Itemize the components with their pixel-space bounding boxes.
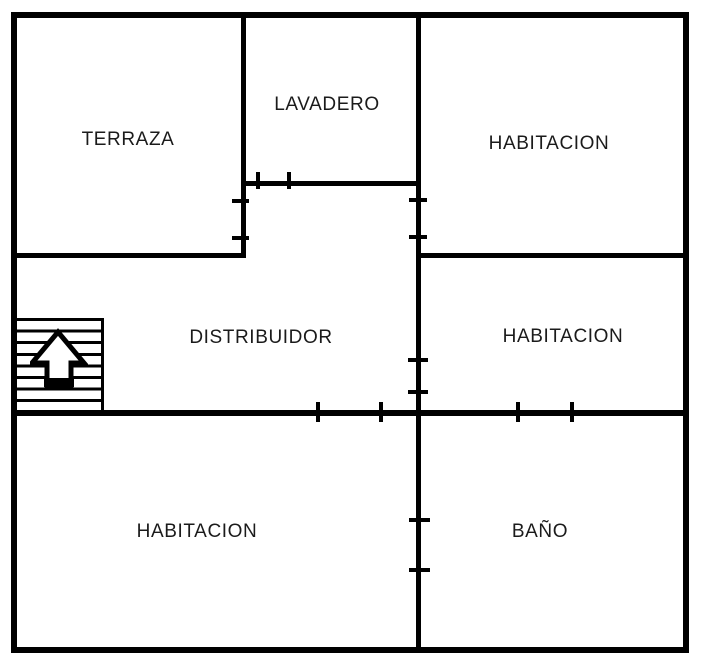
door-mark-habitacion-bottom-a (316, 402, 320, 422)
room-label-bano: BAÑO (512, 521, 568, 543)
room-label-lavadero: LAVADERO (274, 94, 379, 116)
room-label-habitacion-top-right: HABITACION (489, 133, 610, 155)
room-label-terraza: TERRAZA (82, 129, 175, 151)
door-mark-habitacion-bottom-b (379, 402, 383, 422)
wall-middle-horizontal (11, 410, 689, 416)
wall-terraza-east (241, 12, 246, 258)
door-mark-bano-west-a (409, 518, 430, 522)
door-mark-terraza-top (232, 199, 249, 203)
door-mark-bano-north-b (570, 402, 574, 422)
door-mark-habitacion-mid-a (408, 358, 428, 362)
room-label-distribuidor: DISTRIBUIDOR (189, 327, 332, 349)
door-mark-habitacion-top-b (409, 235, 427, 239)
door-mark-bano-west-b (409, 568, 430, 572)
wall-lavadero-south (241, 181, 421, 186)
door-mark-lavadero-right (287, 172, 291, 189)
room-label-habitacion-mid-right: HABITACION (503, 326, 624, 348)
door-mark-terraza-bottom (232, 236, 249, 240)
door-mark-habitacion-mid-b (408, 390, 428, 394)
stairs-up-arrow-icon (30, 328, 88, 390)
room-label-habitacion-bottom-left: HABITACION (137, 521, 258, 543)
wall-terraza-south (11, 253, 246, 258)
door-mark-bano-north-a (516, 402, 520, 422)
wall-habitacion-top-south (416, 253, 689, 258)
wall-central-vertical (416, 12, 421, 653)
floor-plan: TERRAZA LAVADERO HABITACION DISTRIBUIDOR… (0, 0, 713, 669)
door-mark-lavadero-left (256, 172, 260, 189)
door-mark-habitacion-top-a (409, 198, 427, 202)
